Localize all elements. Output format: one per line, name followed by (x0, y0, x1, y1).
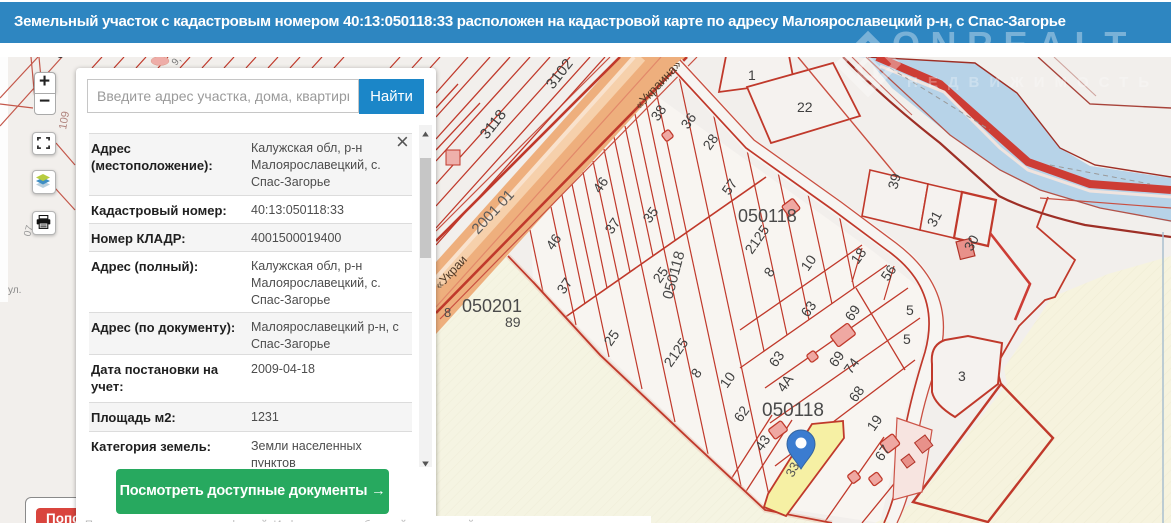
svg-text:НЕДВИЖИМОСТЬ: НЕДВИЖИМОСТЬ (907, 74, 1159, 91)
svg-text:89: 89 (505, 314, 521, 330)
svg-text:1: 1 (748, 67, 756, 83)
svg-text:050118: 050118 (762, 400, 824, 421)
svg-text:5: 5 (906, 302, 914, 318)
svg-text:050118: 050118 (738, 206, 797, 226)
svg-text:22: 22 (797, 99, 813, 115)
svg-text:ул.: ул. (8, 285, 21, 296)
svg-text:050201: 050201 (462, 296, 522, 316)
svg-text:3: 3 (958, 368, 966, 384)
svg-text:5: 5 (903, 331, 911, 347)
svg-text:8: 8 (444, 305, 451, 320)
svg-text:ONREALT: ONREALT (892, 25, 1137, 65)
